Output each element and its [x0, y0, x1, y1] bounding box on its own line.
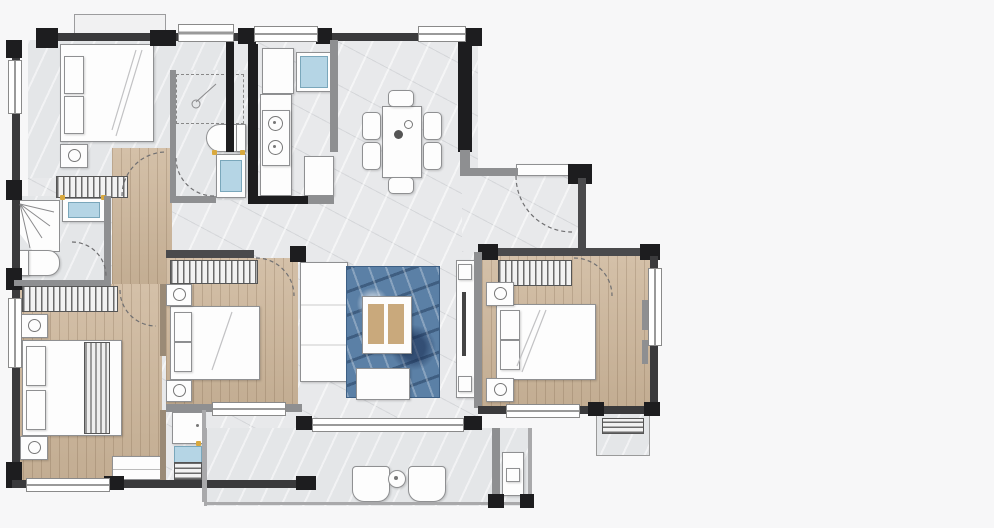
- wall-entry-right: [578, 178, 586, 252]
- dining-table: [382, 106, 422, 178]
- wall-kitchen-bottom2: [308, 196, 334, 204]
- dining-chair: [423, 142, 442, 170]
- master-bed-throw: [84, 342, 110, 434]
- bed3-pillow: [500, 340, 520, 370]
- burner-dot: [273, 145, 276, 148]
- window: [8, 298, 22, 368]
- speaker: [458, 376, 472, 392]
- decor-dot: [196, 441, 201, 446]
- ottoman: [356, 368, 410, 400]
- fan-icon: [28, 441, 41, 454]
- floor-plan: [0, 0, 690, 528]
- wall-block: [488, 494, 504, 508]
- master-pillow: [26, 390, 46, 430]
- flyer-canvas: { "watermark": { "left": "世联", "right": …: [0, 0, 994, 528]
- wall-master-divider: [160, 284, 166, 356]
- kitchen-cabinet: [304, 156, 334, 196]
- wall-block: [36, 28, 58, 48]
- dining-chair: [388, 177, 414, 194]
- wall-master-divider: [160, 410, 166, 480]
- bed2-pillow: [174, 312, 192, 342]
- wall-block: [150, 30, 176, 46]
- window: [648, 268, 662, 346]
- wall-block: [520, 494, 534, 508]
- table-decor: [394, 130, 403, 139]
- bed1-pillow: [64, 96, 84, 134]
- wall-block: [296, 416, 312, 430]
- entry-door-leaf: [516, 164, 574, 176]
- bed3-pillow: [500, 310, 520, 340]
- toilet2-tank: [236, 124, 246, 152]
- wall-block: [464, 416, 482, 430]
- wall-bedroom3-top: [478, 248, 658, 256]
- heater-panel: [506, 468, 520, 482]
- decor-dot: [212, 150, 217, 155]
- balcony-door-sill: [312, 418, 464, 432]
- fan-icon: [28, 319, 41, 332]
- wall-bath1-right: [104, 196, 111, 282]
- decor-dot: [240, 150, 245, 155]
- wall-bedroom3-left: [474, 252, 482, 408]
- wall-block: [290, 246, 306, 262]
- fan-icon: [68, 149, 81, 162]
- wall-block: [296, 476, 316, 490]
- kitchen-sink-basin: [300, 56, 328, 88]
- sink1-basin: [68, 202, 100, 218]
- bed2-pillow: [174, 342, 192, 372]
- master-pillow: [26, 346, 46, 386]
- fan-icon: [173, 384, 186, 397]
- coffee-table-tray: [388, 304, 404, 344]
- vanity2-basin: [220, 160, 242, 192]
- master-wardrobe: [22, 286, 118, 312]
- hall-cabinet: [172, 412, 204, 444]
- tv-screen: [462, 292, 466, 356]
- window: [418, 26, 466, 42]
- window-bay: [178, 24, 234, 42]
- wall-block: [6, 180, 22, 200]
- dining-chair: [388, 90, 414, 107]
- window: [8, 60, 22, 114]
- balcony-chair: [352, 466, 390, 502]
- dining-chair: [423, 112, 442, 140]
- wardrobe2: [170, 260, 258, 284]
- ac-unit: [602, 418, 644, 434]
- cabinet-handle: [196, 424, 199, 427]
- dining-chair: [362, 142, 381, 170]
- wall-bath2-left: [170, 70, 176, 200]
- fan-icon: [494, 287, 507, 300]
- fridge: [262, 48, 294, 94]
- fan-icon: [494, 383, 507, 396]
- decor-dot: [60, 195, 65, 200]
- fan-icon: [173, 288, 186, 301]
- speaker: [458, 264, 472, 280]
- wall-utility: [492, 428, 500, 504]
- sofa: [300, 262, 348, 382]
- window: [506, 404, 580, 418]
- floor-entry: [462, 168, 578, 252]
- wall-laundry-divider: [202, 410, 206, 502]
- wall-kitchen-bottom: [248, 196, 308, 204]
- washer-vents: [174, 462, 202, 480]
- wall-block: [588, 402, 604, 416]
- dining-chair: [362, 112, 381, 140]
- wardrobe1: [56, 176, 128, 198]
- wall-kitchen-left: [248, 44, 258, 204]
- coffee-table-tray: [368, 304, 384, 344]
- wall-entry-top: [466, 168, 518, 176]
- sliding-door-sill: [212, 402, 286, 416]
- wall-kitchen-right: [330, 40, 338, 152]
- wall-bedroom2-top: [166, 250, 254, 258]
- window: [254, 26, 318, 42]
- wall-step: [458, 36, 472, 152]
- floor-corridor: [112, 148, 172, 288]
- wall-bath1-bottom: [14, 280, 111, 286]
- table-decor: [404, 120, 413, 129]
- balcony-chair: [408, 466, 446, 502]
- wall-block: [6, 268, 22, 290]
- wall-bedroom1-right: [226, 40, 234, 152]
- balcony-table-dot: [394, 476, 398, 480]
- info-panel: 云宸 KANG YANG CHENG K2幢 K3幢 主推面积：134m2 大城…: [690, 0, 994, 528]
- balcony-rail-bottom: [204, 502, 532, 505]
- wall-bath2-bottom: [170, 196, 216, 203]
- window: [26, 478, 110, 492]
- wall-block: [6, 40, 22, 58]
- bed1-pillow: [64, 56, 84, 94]
- burner-dot: [273, 121, 276, 124]
- wall-block: [644, 402, 660, 416]
